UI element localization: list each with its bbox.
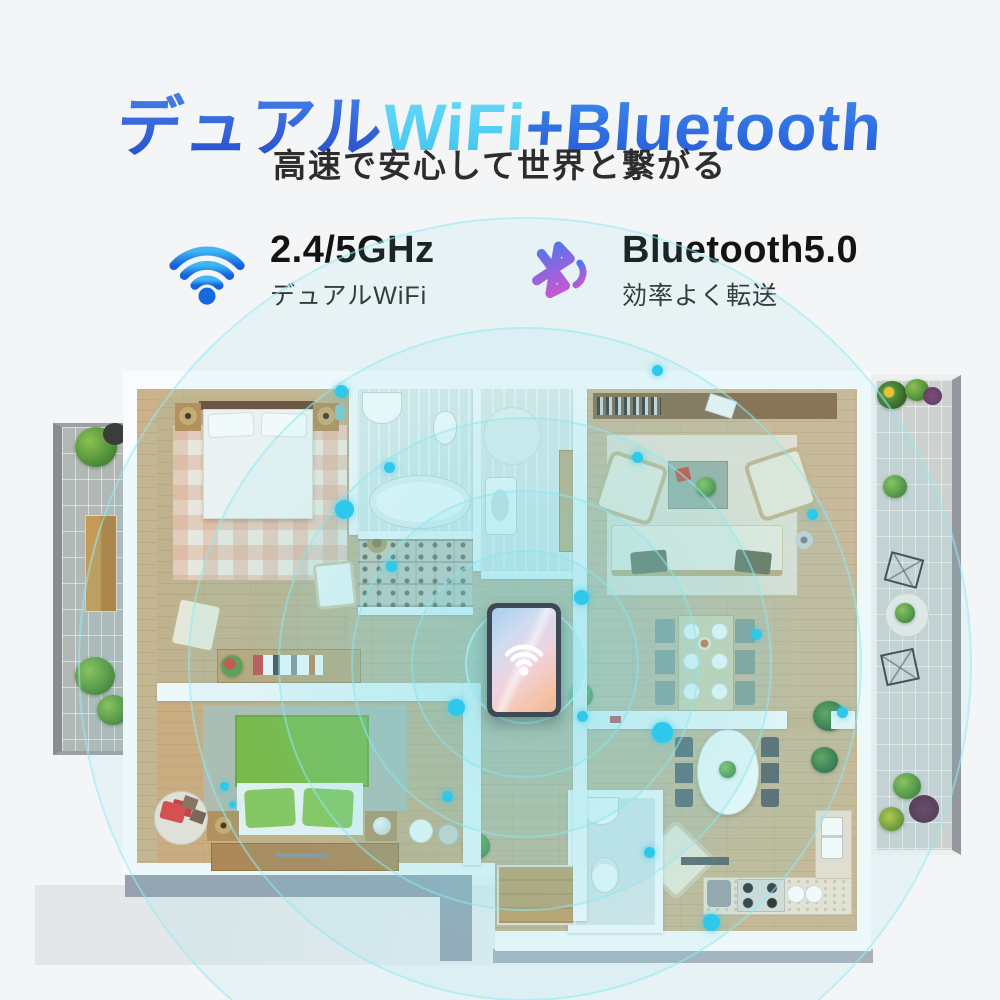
building-plinth-corner (440, 873, 472, 961)
signal-dot (386, 561, 397, 572)
signal-dot (384, 462, 395, 473)
dining-plate-2 (711, 623, 728, 640)
tablet-wifi-icon (502, 636, 546, 680)
kitchen-chairs-left (675, 737, 693, 807)
feature-bluetooth: Bluetooth5.0 効率よく転送 (520, 231, 858, 312)
floorplan-illustration (35, 365, 965, 965)
bed-pillow-right (261, 412, 308, 438)
tablet-screen (492, 608, 556, 712)
shelf-red-item (610, 716, 621, 723)
dining-dish (698, 637, 711, 650)
dining-plate-1 (683, 623, 700, 640)
flower-plant (221, 655, 243, 677)
wall-bath-closet (358, 531, 473, 539)
washer-drum (491, 489, 509, 521)
terrace-plant-purple (923, 387, 942, 405)
sofa-cushion-left (630, 549, 668, 574)
balcony-plant-bottom (75, 657, 115, 695)
signal-dot (220, 782, 229, 791)
palm-plant-2 (811, 747, 838, 773)
sofa-cushion-right (734, 549, 772, 575)
entry-steps (497, 865, 575, 925)
terrace-plant-bot1 (893, 773, 921, 799)
wall-bedroom2-entry (463, 683, 481, 865)
building-plinth-left (125, 873, 455, 897)
coffee-table-plant (696, 477, 716, 497)
feature-description: 効率よく転送 (622, 276, 858, 312)
side-table-1 (409, 819, 433, 843)
bed2-foot-sideboard (211, 843, 399, 871)
sideboard-handle (275, 853, 330, 857)
dining-chairs-left (655, 619, 675, 705)
lamp2-ball (373, 817, 391, 835)
green-pillow-left (244, 788, 296, 829)
building-plinth-bottom (493, 949, 873, 963)
bathtub (369, 475, 471, 529)
kitchen-sink (707, 880, 731, 907)
feature-heading: Bluetooth5.0 (622, 231, 858, 271)
oval-table-plant (719, 761, 736, 778)
dining-plate-3 (683, 653, 700, 670)
terrace-table-plant (895, 603, 915, 623)
green-bed-blanket (235, 715, 369, 787)
signal-dot (577, 711, 588, 722)
terrace-plant-mid (883, 475, 907, 498)
toilet (433, 411, 457, 445)
bluetooth-icon (520, 231, 602, 311)
signal-dot (652, 365, 663, 376)
tablet-device (487, 603, 561, 717)
signal-dot (837, 707, 848, 718)
wall-center-living (573, 389, 587, 921)
oven-appliances (821, 817, 843, 859)
small-bath-sink (583, 797, 619, 825)
dining-plate-5 (683, 683, 700, 700)
feature-text: Bluetooth5.0 効率よく転送 (622, 231, 858, 312)
feature-text: 2.4/5GHz デュアルWiFi (270, 231, 435, 312)
terrace-plant-top1 (877, 381, 907, 409)
feature-heading: 2.4/5GHz (270, 231, 435, 271)
balcony-bench (85, 515, 117, 612)
signal-dot (644, 847, 655, 858)
signal-dot (632, 452, 643, 463)
wifi-icon (164, 231, 250, 311)
bed-pillow-left (207, 412, 254, 438)
signal-dot (229, 801, 236, 808)
side-table-2 (437, 823, 460, 846)
wall-bedrooms (157, 683, 463, 701)
wall-bath-laundry (473, 389, 481, 571)
dining-plate-6 (711, 683, 728, 700)
lamp-right (317, 407, 335, 425)
counter-plate-1 (787, 885, 805, 903)
signal-dot (807, 509, 818, 520)
feature-dual-wifi: 2.4/5GHz デュアルWiFi (164, 231, 435, 312)
terrace-plant-bot3 (879, 807, 904, 831)
signal-dot (335, 385, 348, 398)
stove (737, 879, 785, 912)
terrace-plant-bot2 (909, 795, 939, 823)
floor-speaker (795, 531, 813, 549)
small-bath-toilet (591, 857, 619, 893)
signal-dot (652, 722, 673, 743)
counter-plate-2 (805, 885, 823, 903)
signal-dot (335, 500, 354, 519)
dining-plate-4 (711, 653, 728, 670)
bathroom-sink (362, 392, 402, 424)
wall-laundry-bottom (481, 571, 573, 579)
page-subtitle: 高速で安心して世界と繋がる (0, 139, 1000, 187)
laundry-round-rug (483, 407, 541, 465)
dark-floor-mat (681, 857, 729, 865)
signal-dot (448, 699, 465, 716)
marketing-banner: デュアルWiFi+Bluetooth 高速で安心して世界と繋がる 2.4/5GH… (0, 0, 1000, 1000)
signal-dot (751, 629, 762, 640)
signal-dot (703, 914, 720, 931)
kitchen-chairs-right (761, 737, 779, 807)
shelf-books (597, 397, 661, 415)
lamp2-left (215, 817, 232, 834)
feature-description: デュアルWiFi (270, 276, 435, 312)
green-pillow-right (302, 788, 354, 829)
sideboard-books (253, 655, 323, 675)
wall-closet-bottom (358, 607, 473, 615)
signal-dot (442, 791, 453, 802)
lamp-left (179, 407, 197, 425)
teal-vase (335, 405, 346, 420)
signal-dot (574, 590, 589, 605)
hall-lounge-chair (313, 560, 358, 610)
